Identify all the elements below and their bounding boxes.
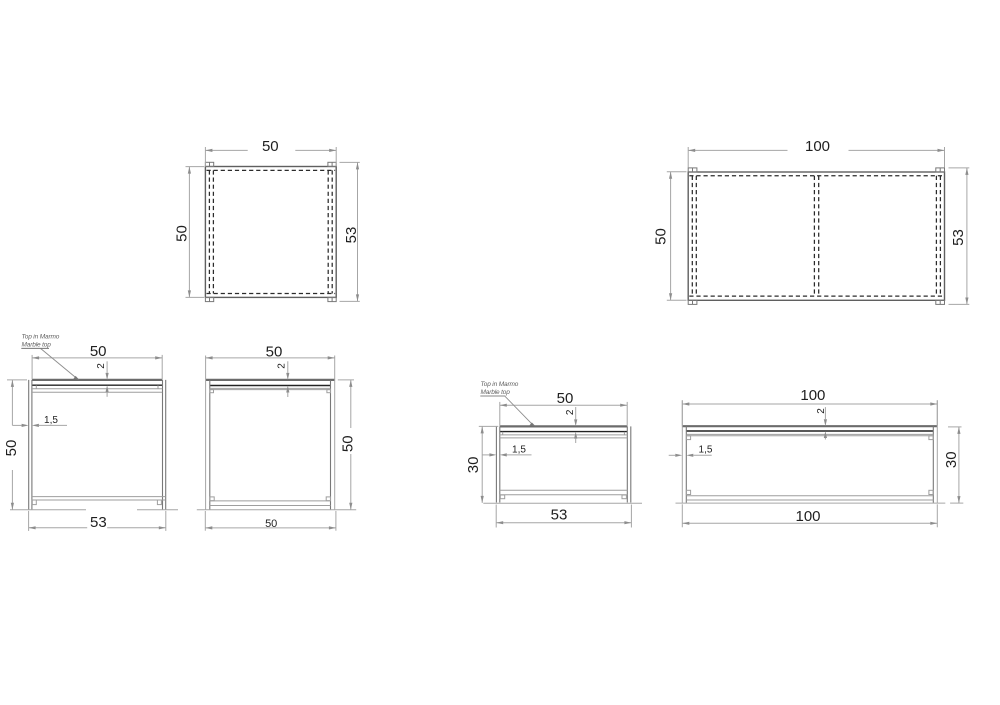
svg-text:2: 2: [565, 409, 576, 415]
svg-text:1,5: 1,5: [512, 444, 526, 455]
svg-text:Top in Marmo: Top in Marmo: [22, 333, 60, 340]
svg-text:50: 50: [173, 225, 190, 242]
svg-text:1,5: 1,5: [699, 445, 713, 456]
svg-text:53: 53: [950, 229, 967, 246]
svg-text:50: 50: [557, 390, 574, 407]
svg-text:50: 50: [266, 343, 283, 360]
svg-text:Marble top: Marble top: [22, 341, 52, 348]
svg-text:2: 2: [816, 408, 827, 414]
svg-text:53: 53: [90, 514, 107, 531]
svg-text:50: 50: [90, 343, 107, 360]
svg-text:30: 30: [943, 451, 960, 468]
svg-text:50: 50: [262, 138, 279, 155]
svg-text:50: 50: [3, 440, 20, 457]
svg-text:30: 30: [465, 457, 482, 474]
svg-text:Marble top: Marble top: [481, 389, 511, 396]
svg-text:2: 2: [96, 363, 107, 369]
svg-text:53: 53: [343, 227, 360, 244]
svg-text:50: 50: [339, 435, 356, 452]
svg-text:100: 100: [800, 387, 825, 404]
svg-text:2: 2: [277, 363, 288, 369]
svg-text:100: 100: [805, 138, 830, 155]
svg-text:100: 100: [795, 508, 820, 525]
svg-text:53: 53: [551, 506, 568, 523]
svg-text:50: 50: [265, 518, 277, 530]
svg-text:50: 50: [653, 228, 670, 245]
svg-text:Top in Marmo: Top in Marmo: [481, 381, 519, 388]
svg-text:1,5: 1,5: [44, 415, 58, 426]
